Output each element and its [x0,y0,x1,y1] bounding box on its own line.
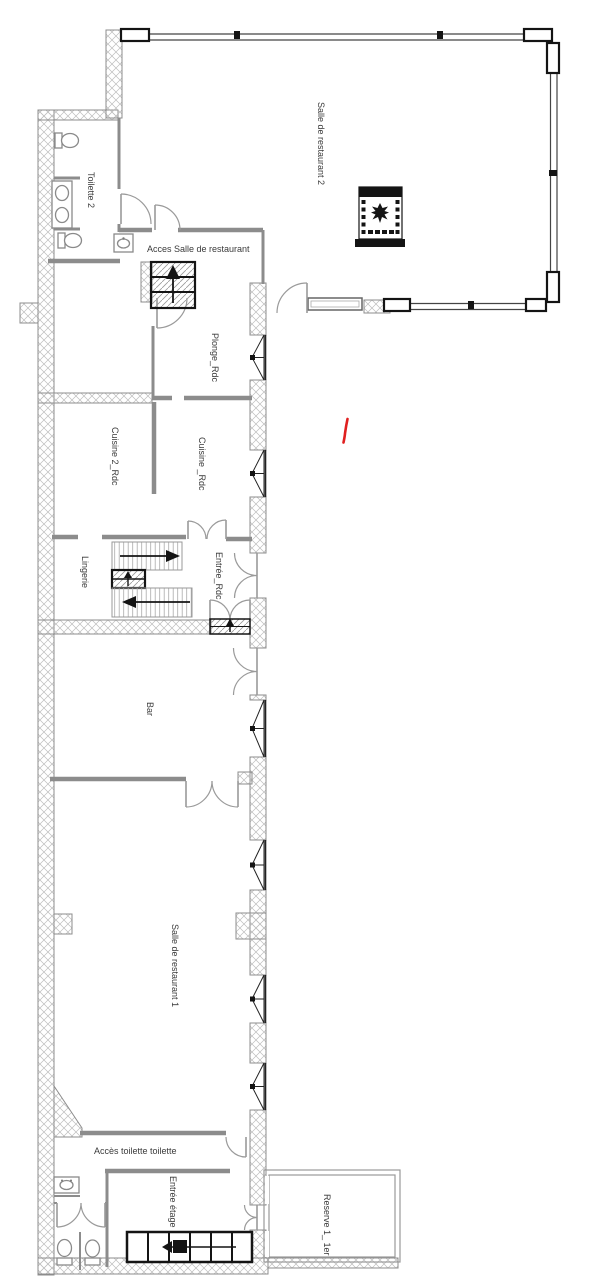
window-icon [250,840,266,890]
door-swing-icon [155,205,180,230]
room-label-salle2: Salle de restaurant 2 [316,102,326,185]
door-swing-icon [81,1203,105,1227]
red-pen-mark [344,419,348,443]
room-label-cuisine: Cuisine _Rdc [197,437,207,491]
entrance-threshold-step [210,619,250,635]
floor-plan-page: Salle de restaurant 2 Toilette 2 Acces S… [0,0,609,1287]
handwash-sink-icon [114,234,133,252]
door-swing-icon [121,194,151,224]
sink-icon [54,1177,79,1193]
sanitary-fixtures [52,133,133,1265]
room-label-toilette2: Toilette 2 [86,172,96,208]
double-door-icon [234,648,258,695]
window-icon [250,975,266,1023]
double-door-icon [210,600,250,620]
room-labels: Salle de restaurant 2 Toilette 2 Acces S… [80,102,332,1256]
floor-plan-svg: Salle de restaurant 2 Toilette 2 Acces S… [0,0,609,1287]
toilet-icon [85,1240,100,1265]
window-icon [250,1063,266,1110]
room-label-cuisine2: Cuisine 2_Rdc [110,427,120,486]
toilet-icon [58,233,82,248]
room-label-salle1: Salle de restaurant 1 [170,924,180,1007]
doors [57,194,307,1230]
room-label-entree-rdc: Entrée_Rdc [214,552,224,600]
exterior-walls [20,30,398,1275]
double-door-icon [188,520,226,539]
room-label-entree-etage: Entrée étage [168,1176,178,1228]
window-icon [250,450,266,497]
fireplace-icon [355,187,405,247]
room-label-reserve: Reserve 1_ 1er [322,1194,332,1256]
room-label-bar: Bar [145,702,155,716]
bench [308,298,362,310]
double-door-icon [245,1205,258,1230]
door-swing-icon [57,1203,81,1227]
room-label-plonge: Plonge_Rdc [210,333,220,383]
window-icon [250,335,266,380]
room-label-acces-toilette: Accès toilette toilette [94,1146,177,1156]
toilet-icon [55,133,79,148]
room-label-lingerie: Lingerie [80,556,90,588]
staircase-etage [127,1232,252,1262]
toilet-icon [57,1240,72,1266]
double-door-icon [235,553,258,598]
sink-counter-icon [52,181,72,228]
room-label-acces-salle: Acces Salle de restaurant [147,244,250,254]
double-door-icon [186,781,238,807]
door-swing-icon [226,1137,246,1157]
casement-windows [250,335,266,1110]
window-icon [250,700,266,757]
door-swing-icon [277,283,307,313]
staircase-restaurant-access [151,262,195,308]
staircase-main [112,542,192,617]
